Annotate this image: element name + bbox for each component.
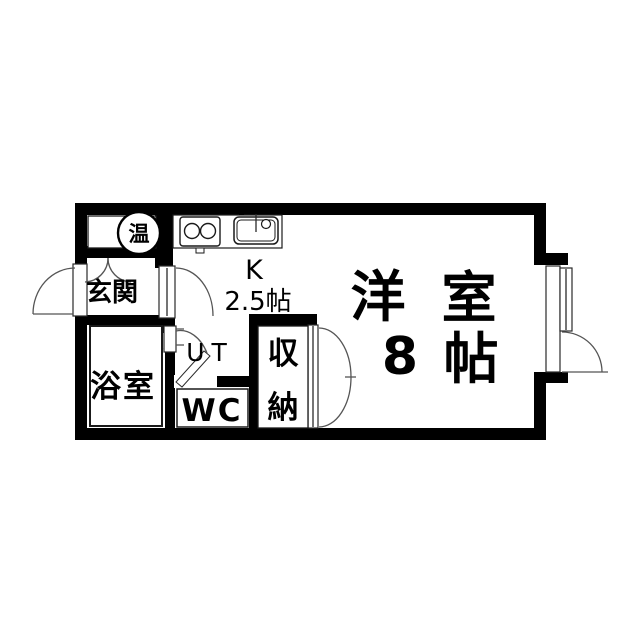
sink-tap-mark [239, 205, 244, 215]
entrance-door-frame [73, 264, 87, 316]
kitchen-size-label: 2.5帖 [224, 287, 291, 317]
storage-label-bottom: 納 [268, 390, 299, 426]
stove-knob [196, 248, 204, 253]
bathroom-door-frame [164, 326, 176, 352]
wall-right-upper [534, 203, 546, 265]
living-room-size-num: 8 [382, 327, 418, 387]
bathroom-label: 浴室 [90, 369, 156, 405]
kitchen-label: K [245, 255, 264, 286]
balcony-stub-bottom [546, 372, 568, 383]
stove-burner-left [185, 224, 200, 239]
living-room-char-1: 洋 [350, 265, 405, 329]
wall-entrance-bathroom [87, 315, 165, 325]
living-room-char-2: 室 [441, 266, 496, 330]
sink-drain [262, 220, 271, 229]
balcony-stub-top [546, 253, 568, 265]
wall-right-lower [534, 372, 546, 440]
water-heater-label: 温 [129, 222, 150, 246]
living-room-size-unit: 帖 [443, 327, 498, 391]
toilet-label: WC [182, 393, 243, 429]
entrance-label: 玄関 [86, 277, 138, 308]
balcony-door-frame [546, 266, 560, 372]
wall-bottom [75, 428, 546, 440]
wall-left-lower [75, 315, 87, 440]
floor-plan-canvas: 温 玄関 浴室 UT WC 収 納 K 2.5帖 洋 室 8 帖 [0, 0, 640, 640]
floor-plan-drawing: 温 玄関 浴室 UT WC 収 納 K 2.5帖 洋 室 8 帖 [0, 0, 640, 640]
stove-burner-right [201, 224, 216, 239]
water-heater-symbol: 温 [118, 212, 160, 254]
storage-label-top: 収 [268, 336, 299, 372]
utility-label: UT [186, 338, 234, 367]
